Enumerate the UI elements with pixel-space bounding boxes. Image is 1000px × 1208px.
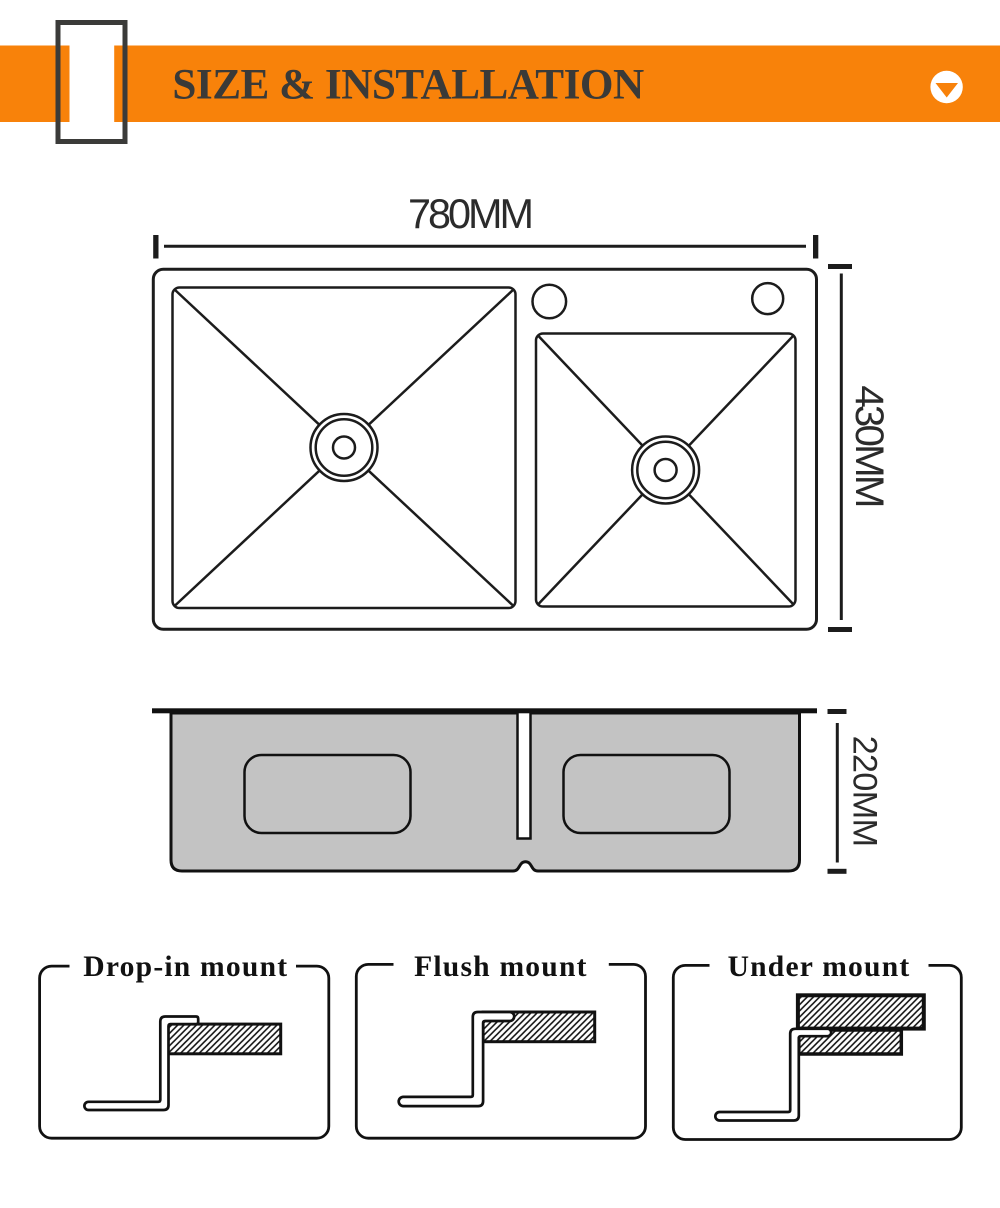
svg-text:780MM: 780MM — [408, 191, 532, 237]
svg-text:220MM: 220MM — [845, 736, 883, 847]
svg-text:SIZE & INSTALLATION: SIZE & INSTALLATION — [172, 62, 644, 109]
svg-text:Flush mount: Flush mount — [414, 951, 588, 983]
svg-text:Under mount: Under mount — [728, 951, 911, 983]
svg-text:Drop-in mount: Drop-in mount — [83, 951, 288, 983]
svg-text:430MM: 430MM — [847, 385, 892, 506]
